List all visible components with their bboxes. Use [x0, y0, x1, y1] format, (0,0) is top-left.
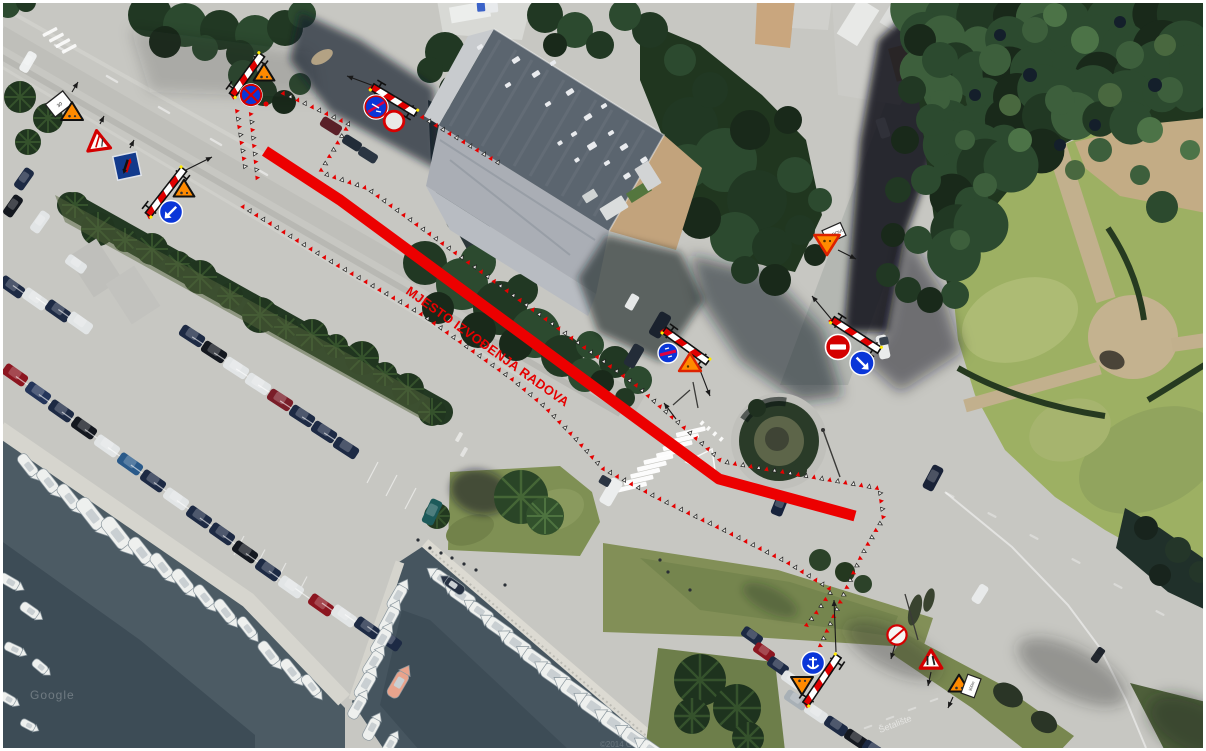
svg-text:©2014 Google: ©2014 Google	[600, 740, 652, 749]
svg-text:Google: Google	[30, 688, 75, 702]
